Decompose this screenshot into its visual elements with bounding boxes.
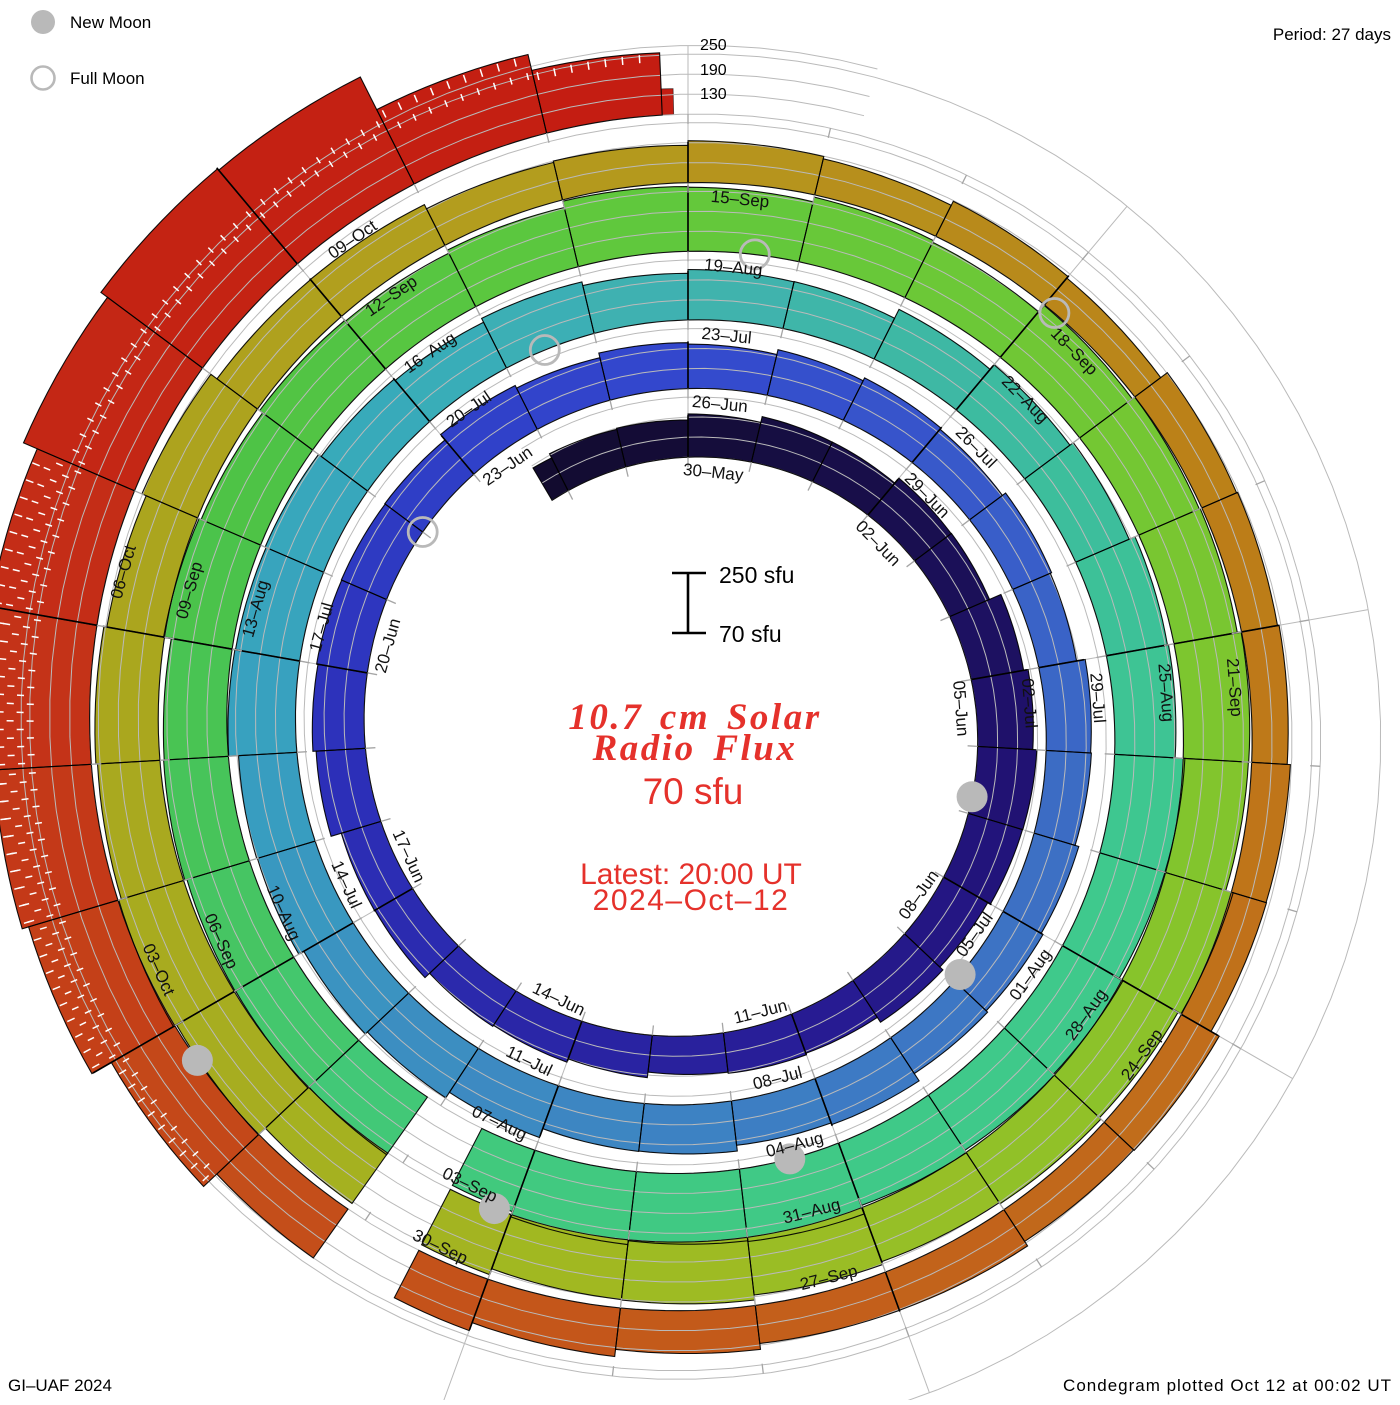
svg-text:130: 130 <box>700 86 727 103</box>
svg-text:Radio Flux: Radio Flux <box>592 728 798 769</box>
svg-text:GI–UAF 2024: GI–UAF 2024 <box>8 1376 112 1395</box>
svg-text:New Moon: New Moon <box>70 13 151 32</box>
svg-text:70 sfu: 70 sfu <box>643 771 744 812</box>
svg-text:190: 190 <box>700 62 727 79</box>
svg-text:250 sfu: 250 sfu <box>719 562 794 588</box>
svg-text:29–Jul: 29–Jul <box>1086 672 1109 723</box>
svg-text:Condegram plotted Oct 12 at 00: Condegram plotted Oct 12 at 00:02 UT <box>1063 1376 1392 1395</box>
svg-text:02–Jul: 02–Jul <box>1018 678 1041 729</box>
svg-text:70 sfu: 70 sfu <box>719 621 782 647</box>
svg-text:Period: 27 days: Period: 27 days <box>1273 25 1391 44</box>
svg-text:Full Moon: Full Moon <box>70 69 145 88</box>
svg-text:250: 250 <box>700 37 727 54</box>
svg-text:2024–Oct–12: 2024–Oct–12 <box>593 884 790 917</box>
